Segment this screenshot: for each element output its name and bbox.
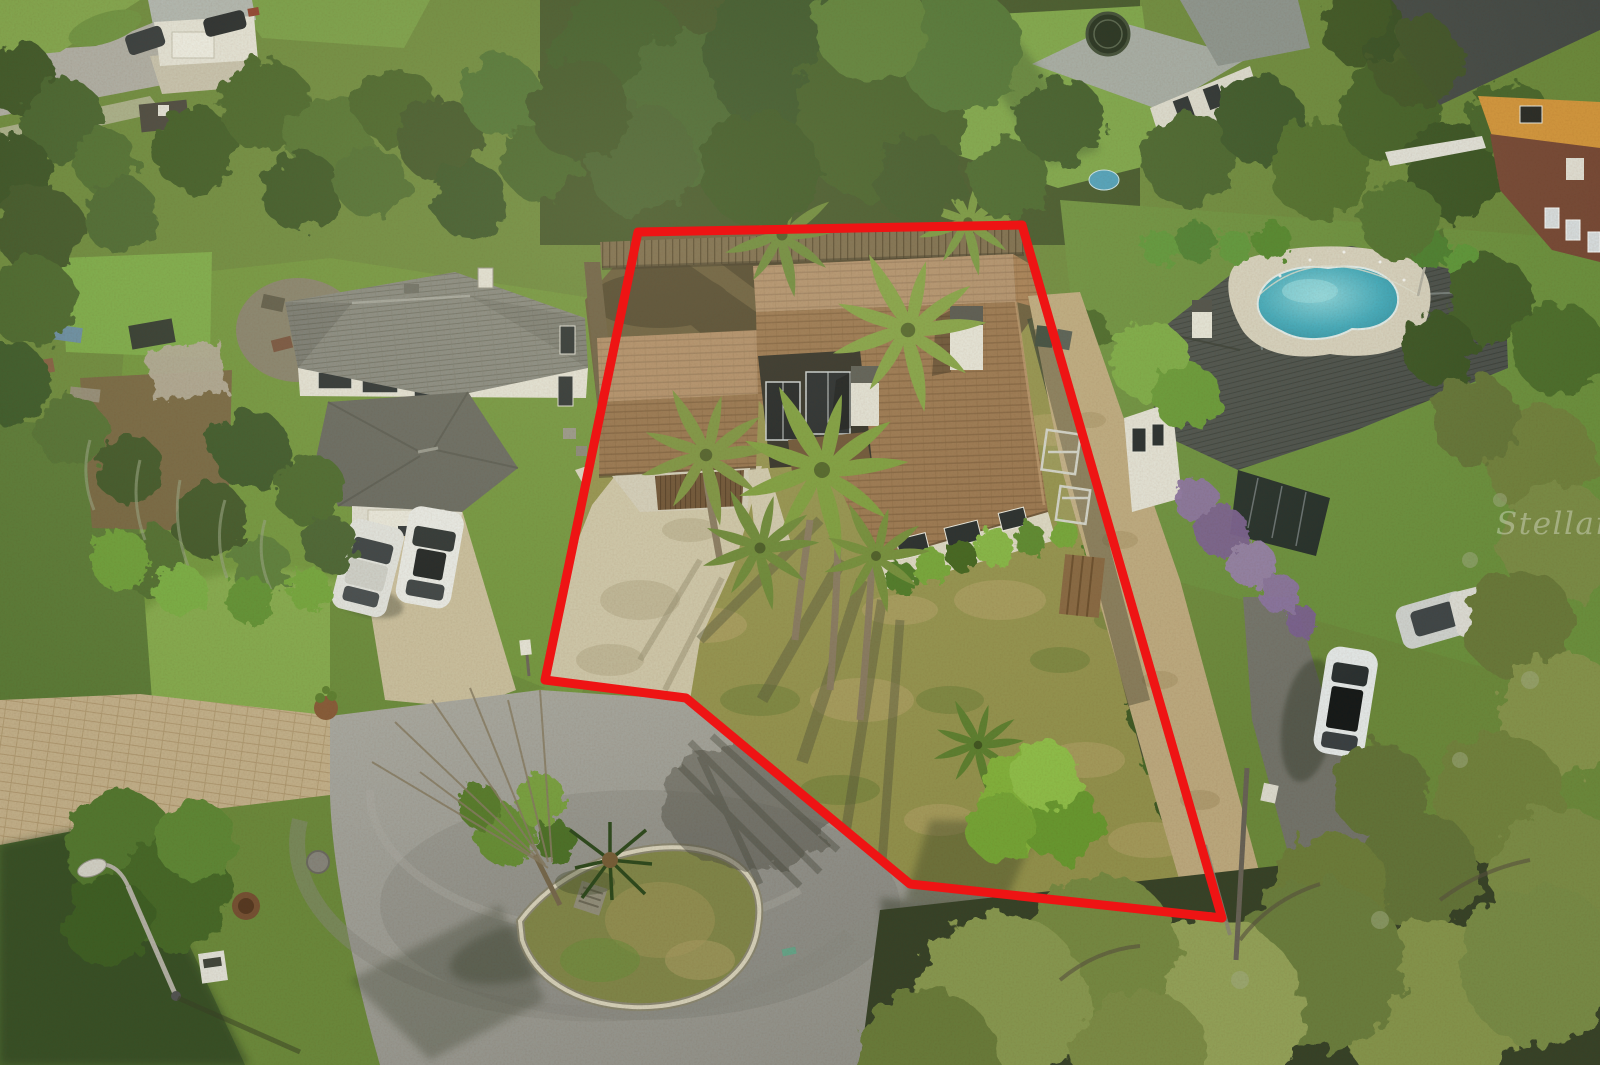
aerial-photo: Stellar MLS bbox=[0, 0, 1600, 1065]
mls-watermark: Stellar MLS bbox=[1496, 506, 1600, 542]
sunlight bbox=[0, 0, 1600, 1065]
